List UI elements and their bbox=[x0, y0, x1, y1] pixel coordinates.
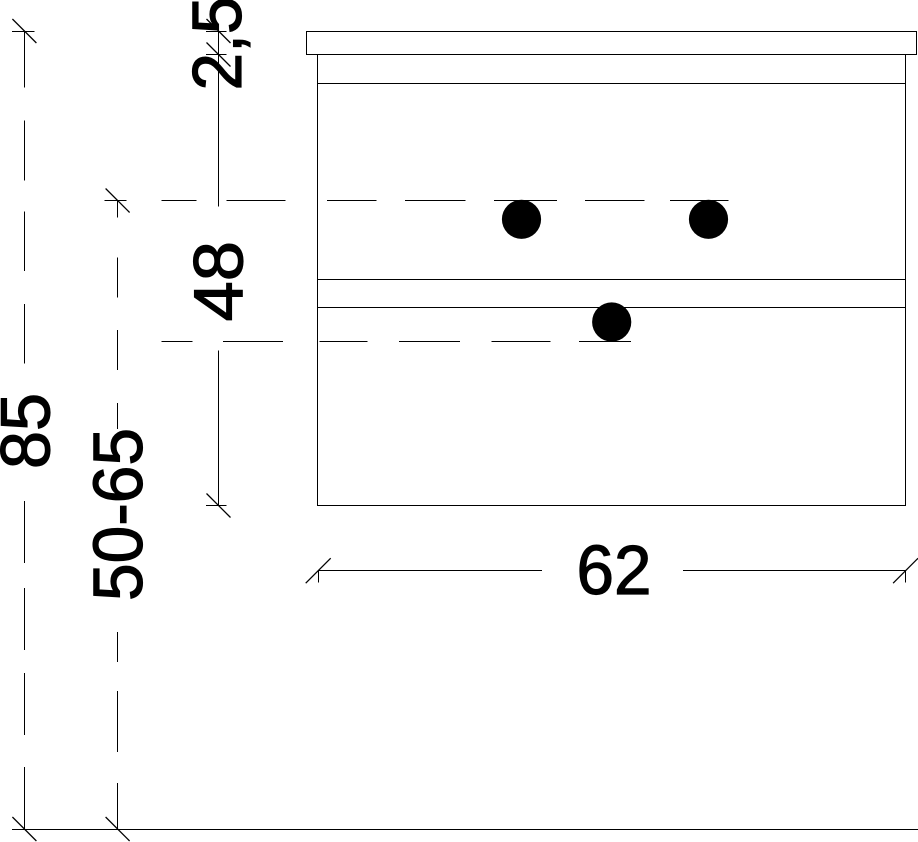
svg-text:48: 48 bbox=[180, 241, 258, 322]
svg-text:50-65: 50-65 bbox=[79, 428, 157, 601]
svg-text:62: 62 bbox=[577, 531, 652, 609]
svg-text:2,5: 2,5 bbox=[178, 0, 256, 91]
svg-text:85: 85 bbox=[0, 393, 65, 469]
